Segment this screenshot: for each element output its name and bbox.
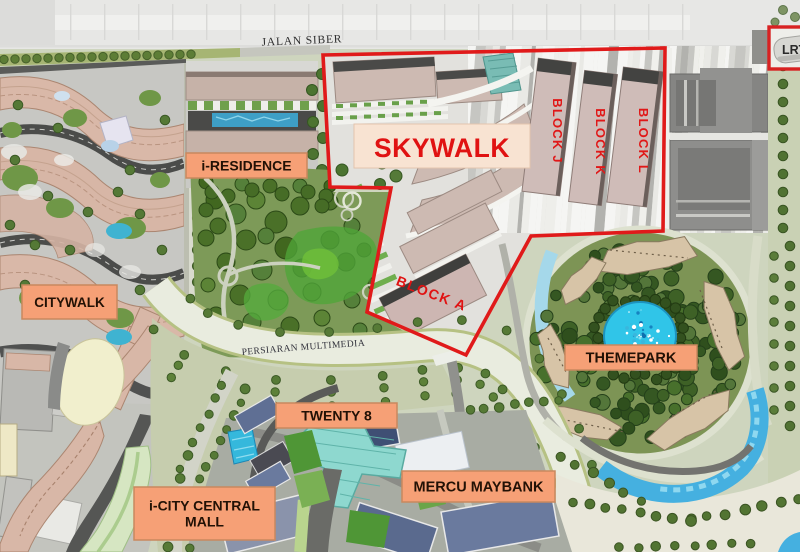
svg-text:CITYWALK: CITYWALK — [34, 295, 105, 310]
svg-text:TWENTY 8: TWENTY 8 — [301, 408, 372, 424]
svg-text:i-RESIDENCE: i-RESIDENCE — [201, 158, 291, 174]
svg-text:MERCU MAYBANK: MERCU MAYBANK — [414, 480, 544, 496]
svg-text:MALL: MALL — [185, 514, 224, 530]
svg-text:THEMEPARK: THEMEPARK — [586, 351, 677, 367]
svg-text:BLOCK J: BLOCK J — [550, 98, 565, 163]
svg-text:i-CITY CENTRAL: i-CITY CENTRAL — [149, 498, 260, 514]
svg-text:BLOCK L: BLOCK L — [636, 108, 651, 174]
svg-text:BLOCK K: BLOCK K — [593, 108, 608, 176]
svg-text:SKYWALK: SKYWALK — [374, 133, 510, 163]
svg-text:LRT: LRT — [782, 43, 800, 57]
